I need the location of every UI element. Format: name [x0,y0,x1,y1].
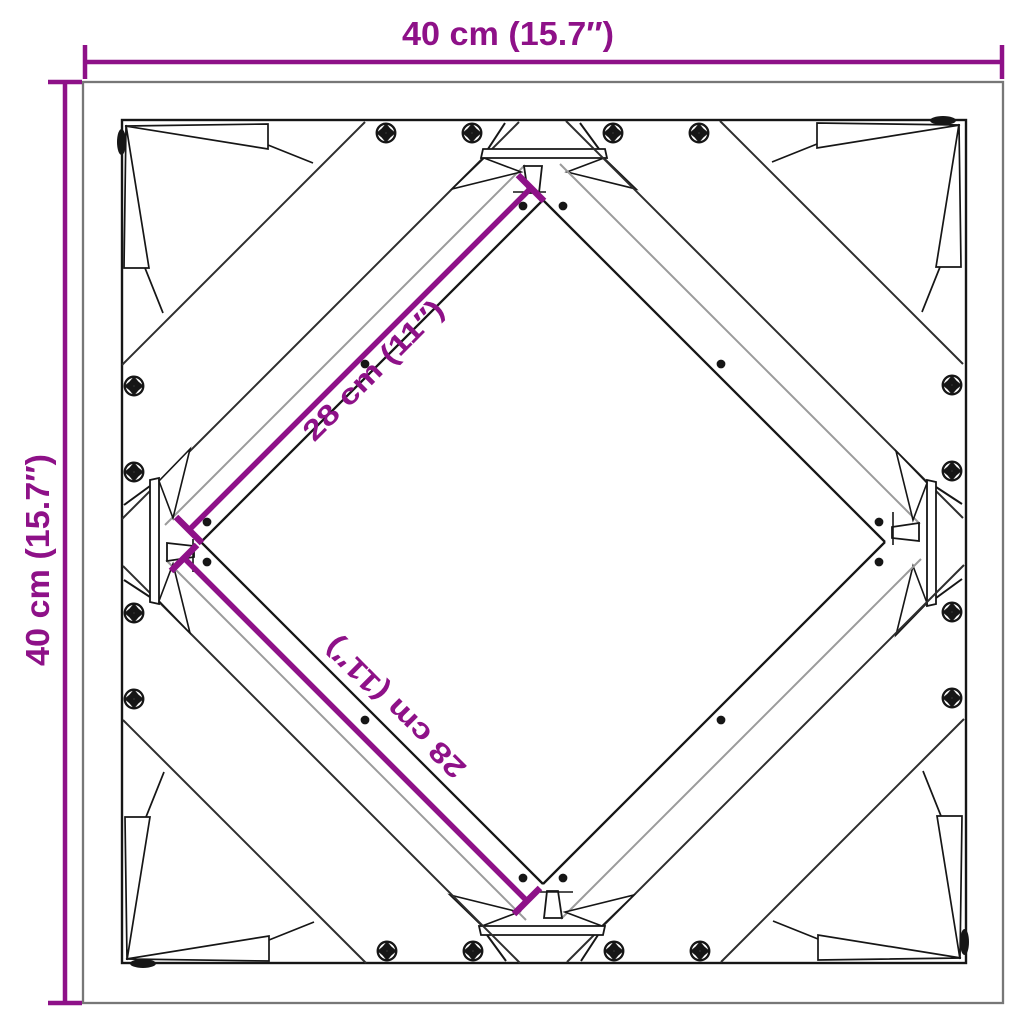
dimension-label-diagonal-lower: 28 cm (11″) [319,630,473,784]
product-dimension-diagram: 40 cm (15.7″) 40 cm (15.7″) 28 cm (11″) … [0,0,1024,1024]
dimension-line-diagonal-lower [184,558,527,901]
dimension-line-diagonal-upper [189,188,531,530]
frame-outer-edge [83,82,1003,1003]
frame-inner-edge [122,120,966,963]
quadrant-right [543,116,963,707]
dimension-lines [48,45,1002,1003]
dimension-label-left-height: 40 cm (15.7″) [19,454,56,666]
dimension-drawing: 40 cm (15.7″) 40 cm (15.7″) 28 cm (11″) … [0,0,1024,1024]
quadrant-bottom [378,542,969,962]
dimension-label-top-width: 40 cm (15.7″) [402,15,614,52]
quadrant-left [123,377,543,968]
